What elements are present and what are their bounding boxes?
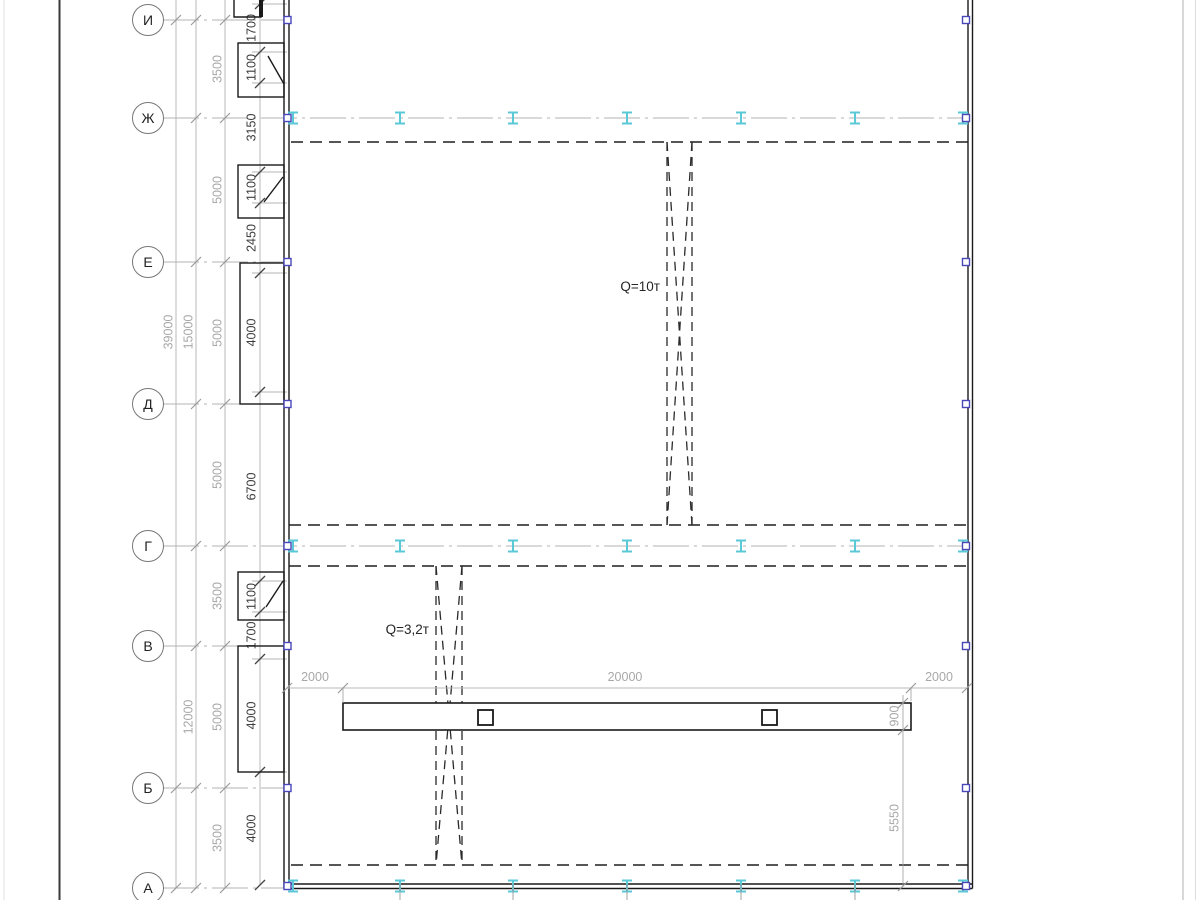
door-leaf [268,56,284,84]
axis-bubble-label: Г [144,538,152,554]
axis-bubble-v: В [133,631,164,662]
ibeam-column-icon [395,541,405,552]
axis-bubble-label: Ж [142,110,155,126]
column-marker [284,643,291,650]
axis-bubble-label: А [143,880,153,896]
dim-value: 6700 [244,473,258,501]
column-marker [963,883,970,890]
axis-bubbles: И Ж Е Д Г В Б А [133,5,164,900]
column-marker [963,543,970,550]
column-marker [963,785,970,792]
dim-value: 5000 [210,176,224,204]
axis-bubble-label: Б [143,780,152,796]
drawing-canvas: 1700 1100 3150 1100 2450 4000 6700 1100 … [0,0,1200,900]
beam-opening [762,710,777,725]
dim-value: 3500 [210,55,224,83]
ibeam-column-icon [395,113,405,124]
wall-post [259,0,263,17]
column-marker [963,115,970,122]
building-walls [234,0,973,889]
column-markers [284,17,970,890]
column-marker [963,17,970,24]
axis-bubble-i: И [133,5,164,36]
column-marker [284,785,291,792]
axis-bubble-label: И [143,12,153,28]
axis-bubble-b: Б [133,773,164,804]
dim-value: 4000 [244,319,258,347]
dim-value: 39000 [161,315,175,350]
axis-bubble-zh: Ж [133,103,164,134]
monorail-beam [343,703,911,730]
crane-capacity-label: Q=3,2т [386,622,429,637]
axis-bubble-g: Г [133,531,164,562]
ibeam-symbols [288,113,968,892]
dim-value: 5000 [210,703,224,731]
dim-value: 3500 [210,824,224,852]
plan-drawing: 1700 1100 3150 1100 2450 4000 6700 1100 … [0,0,1200,900]
dim-value: 2450 [244,224,258,252]
crane-10t: Q=10т [620,142,692,525]
door-leaf [266,581,283,607]
dim-value: 900 [887,706,901,727]
column-marker [963,643,970,650]
column-marker [963,401,970,408]
dim-value: 3500 [210,582,224,610]
dim-value: 5000 [210,461,224,489]
dim-value: 12000 [181,700,195,735]
axis-bubble-label: В [143,638,152,654]
axis-bubble-label: Е [143,254,152,270]
dim-value: 1100 [244,174,258,201]
dim-value: 15000 [181,315,195,350]
beam-opening [478,710,493,725]
column-marker [284,259,291,266]
dim-value: 2000 [925,670,953,684]
dim-value: 1100 [244,583,258,610]
dim-value: 4000 [244,815,258,843]
crane-rails [289,142,968,865]
column-marker [284,883,291,890]
crane-capacity-label: Q=10т [620,279,660,294]
dim-value: 20000 [608,670,643,684]
dim-value: 1100 [244,54,258,81]
column-marker [284,115,291,122]
dim-value: 4000 [244,702,258,730]
axis-bubble-d: Д [133,389,164,420]
dim-value: 2000 [301,670,329,684]
column-marker [284,401,291,408]
column-marker [284,543,291,550]
dim-value: 1700 [244,622,258,650]
dim-value: 5000 [210,319,224,347]
dim-value: 5550 [887,804,901,832]
sheet-frame [4,0,1196,900]
column-marker [284,17,291,24]
dim-value: 1700 [244,14,258,42]
axis-bubble-label: Д [143,396,153,412]
dim-value: 3150 [244,114,258,142]
column-marker [963,259,970,266]
door-leaf [264,177,283,202]
axis-bubble-e: Е [133,247,164,278]
axis-bubble-a: А [133,873,164,900]
